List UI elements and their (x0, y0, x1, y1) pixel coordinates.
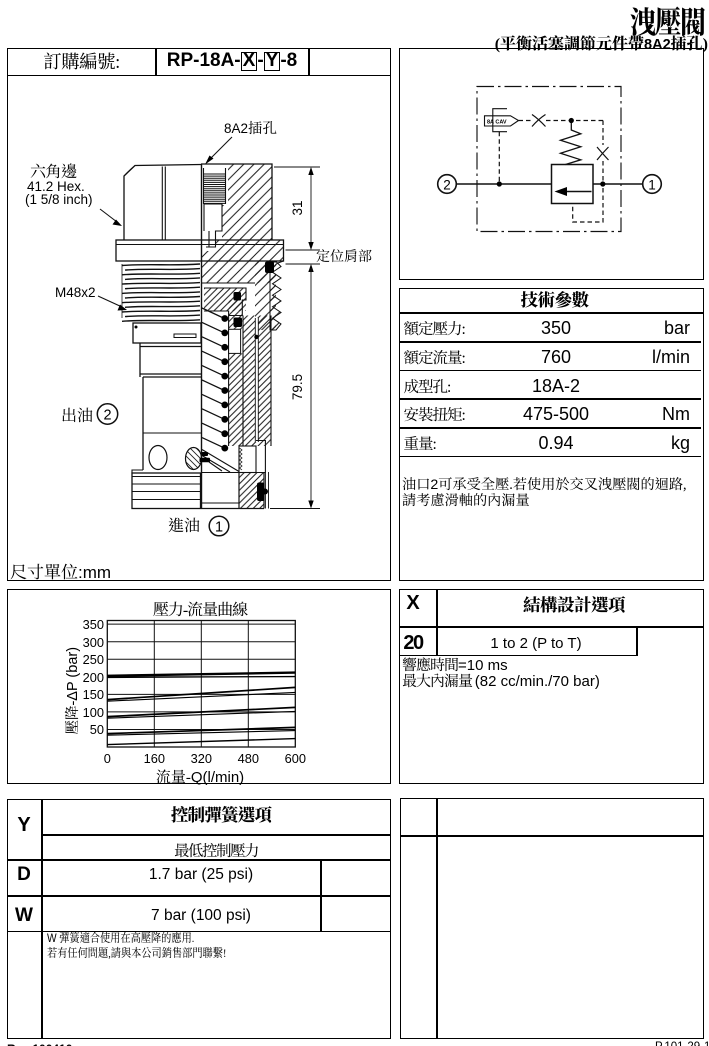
svg-text:2: 2 (103, 408, 111, 424)
svg-text:31: 31 (290, 200, 305, 215)
svg-text:79.5: 79.5 (290, 374, 305, 400)
svg-text:1: 1 (648, 177, 656, 192)
svg-text:1: 1 (215, 520, 223, 536)
svg-text:2: 2 (443, 177, 451, 192)
svg-text:8A CAV: 8A CAV (487, 120, 507, 126)
